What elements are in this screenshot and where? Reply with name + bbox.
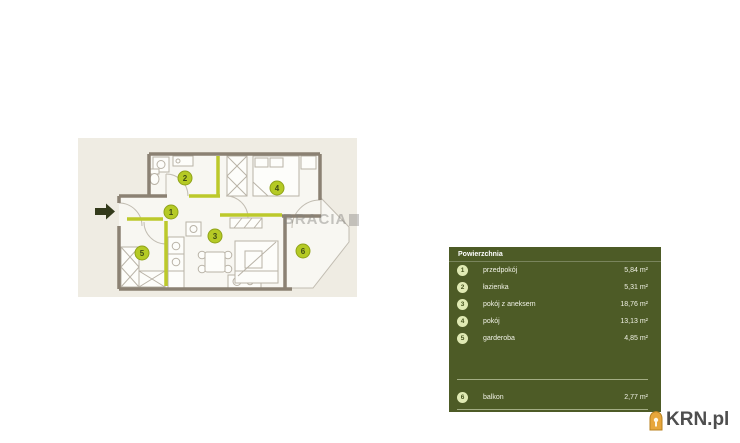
legend-header: Powierzchnia: [449, 247, 661, 262]
room-badge-3: 3: [208, 229, 222, 243]
room-area: 5,84 m²: [624, 267, 648, 274]
room-area: 13,13 m²: [620, 318, 648, 325]
room-number-badge: 3: [457, 299, 468, 310]
room-number-badge: 6: [457, 392, 468, 403]
room-number-badge: 4: [457, 316, 468, 327]
room-area: 18,76 m²: [620, 301, 648, 308]
room-number-badge: 2: [457, 282, 468, 293]
room-badge-1: 1: [164, 205, 178, 219]
legend-divider: [457, 379, 648, 380]
svg-text:2: 2: [183, 174, 188, 183]
window-sill: [230, 218, 262, 228]
legend-row: 4 pokój 13,13 m²: [457, 313, 648, 330]
watermark-text: BRACIA: [283, 211, 347, 228]
svg-text:1: 1: [169, 208, 174, 217]
logo-text: KRN.pl: [666, 409, 729, 431]
area-legend-panel: Powierzchnia 1 przedpokój 5,84 m² 2 łazi…: [449, 247, 661, 412]
legend-row-balcony: 6 balkon 2,77 m²: [457, 389, 648, 406]
room-area: 5,31 m²: [624, 284, 648, 291]
svg-text:5: 5: [140, 249, 145, 258]
room-badge-4: 4: [270, 181, 284, 195]
room-name: łazienka: [483, 284, 509, 291]
room-badge-6: 6: [296, 244, 310, 258]
bathroom-sink-icon: [173, 156, 193, 166]
legend-row: 2 łazienka 5,31 m²: [457, 279, 648, 296]
legend-row: 5 garderoba 4,85 m²: [457, 330, 648, 347]
krn-logo: KRN.pl: [648, 409, 729, 431]
room-name: garderoba: [483, 335, 515, 342]
room-number-badge: 5: [457, 333, 468, 344]
svg-text:6: 6: [301, 247, 306, 256]
wardrobe-hall: [227, 156, 247, 196]
watermark: BRACIA: [283, 211, 393, 228]
room-number-badge: 1: [457, 265, 468, 276]
legend-row: 3 pokój z aneksem 18,76 m²: [457, 296, 648, 313]
watermark-logo-mark: [349, 214, 359, 226]
room-area: 4,85 m²: [624, 335, 648, 342]
svg-text:3: 3: [213, 232, 218, 241]
room-area: 2,77 m²: [624, 394, 648, 401]
legend-rows: 1 przedpokój 5,84 m² 2 łazienka 5,31 m² …: [449, 262, 661, 410]
sofa: [235, 241, 278, 283]
legend-row: 1 przedpokój 5,84 m²: [457, 262, 648, 279]
listing-floorplan-page: 1 2 3 4 5: [0, 0, 740, 443]
room-name: pokój: [483, 318, 500, 325]
room-name: przedpokój: [483, 267, 517, 274]
legend-bottom-divider: [457, 409, 648, 410]
room-name: pokój z aneksem: [483, 301, 536, 308]
house-icon: [648, 410, 664, 431]
toilet-icon: [150, 169, 159, 185]
room-badge-2: 2: [178, 171, 192, 185]
svg-text:4: 4: [275, 184, 280, 193]
room-badge-5: 5: [135, 246, 149, 260]
room-name: balkon: [483, 394, 504, 401]
nightstand: [301, 156, 316, 169]
